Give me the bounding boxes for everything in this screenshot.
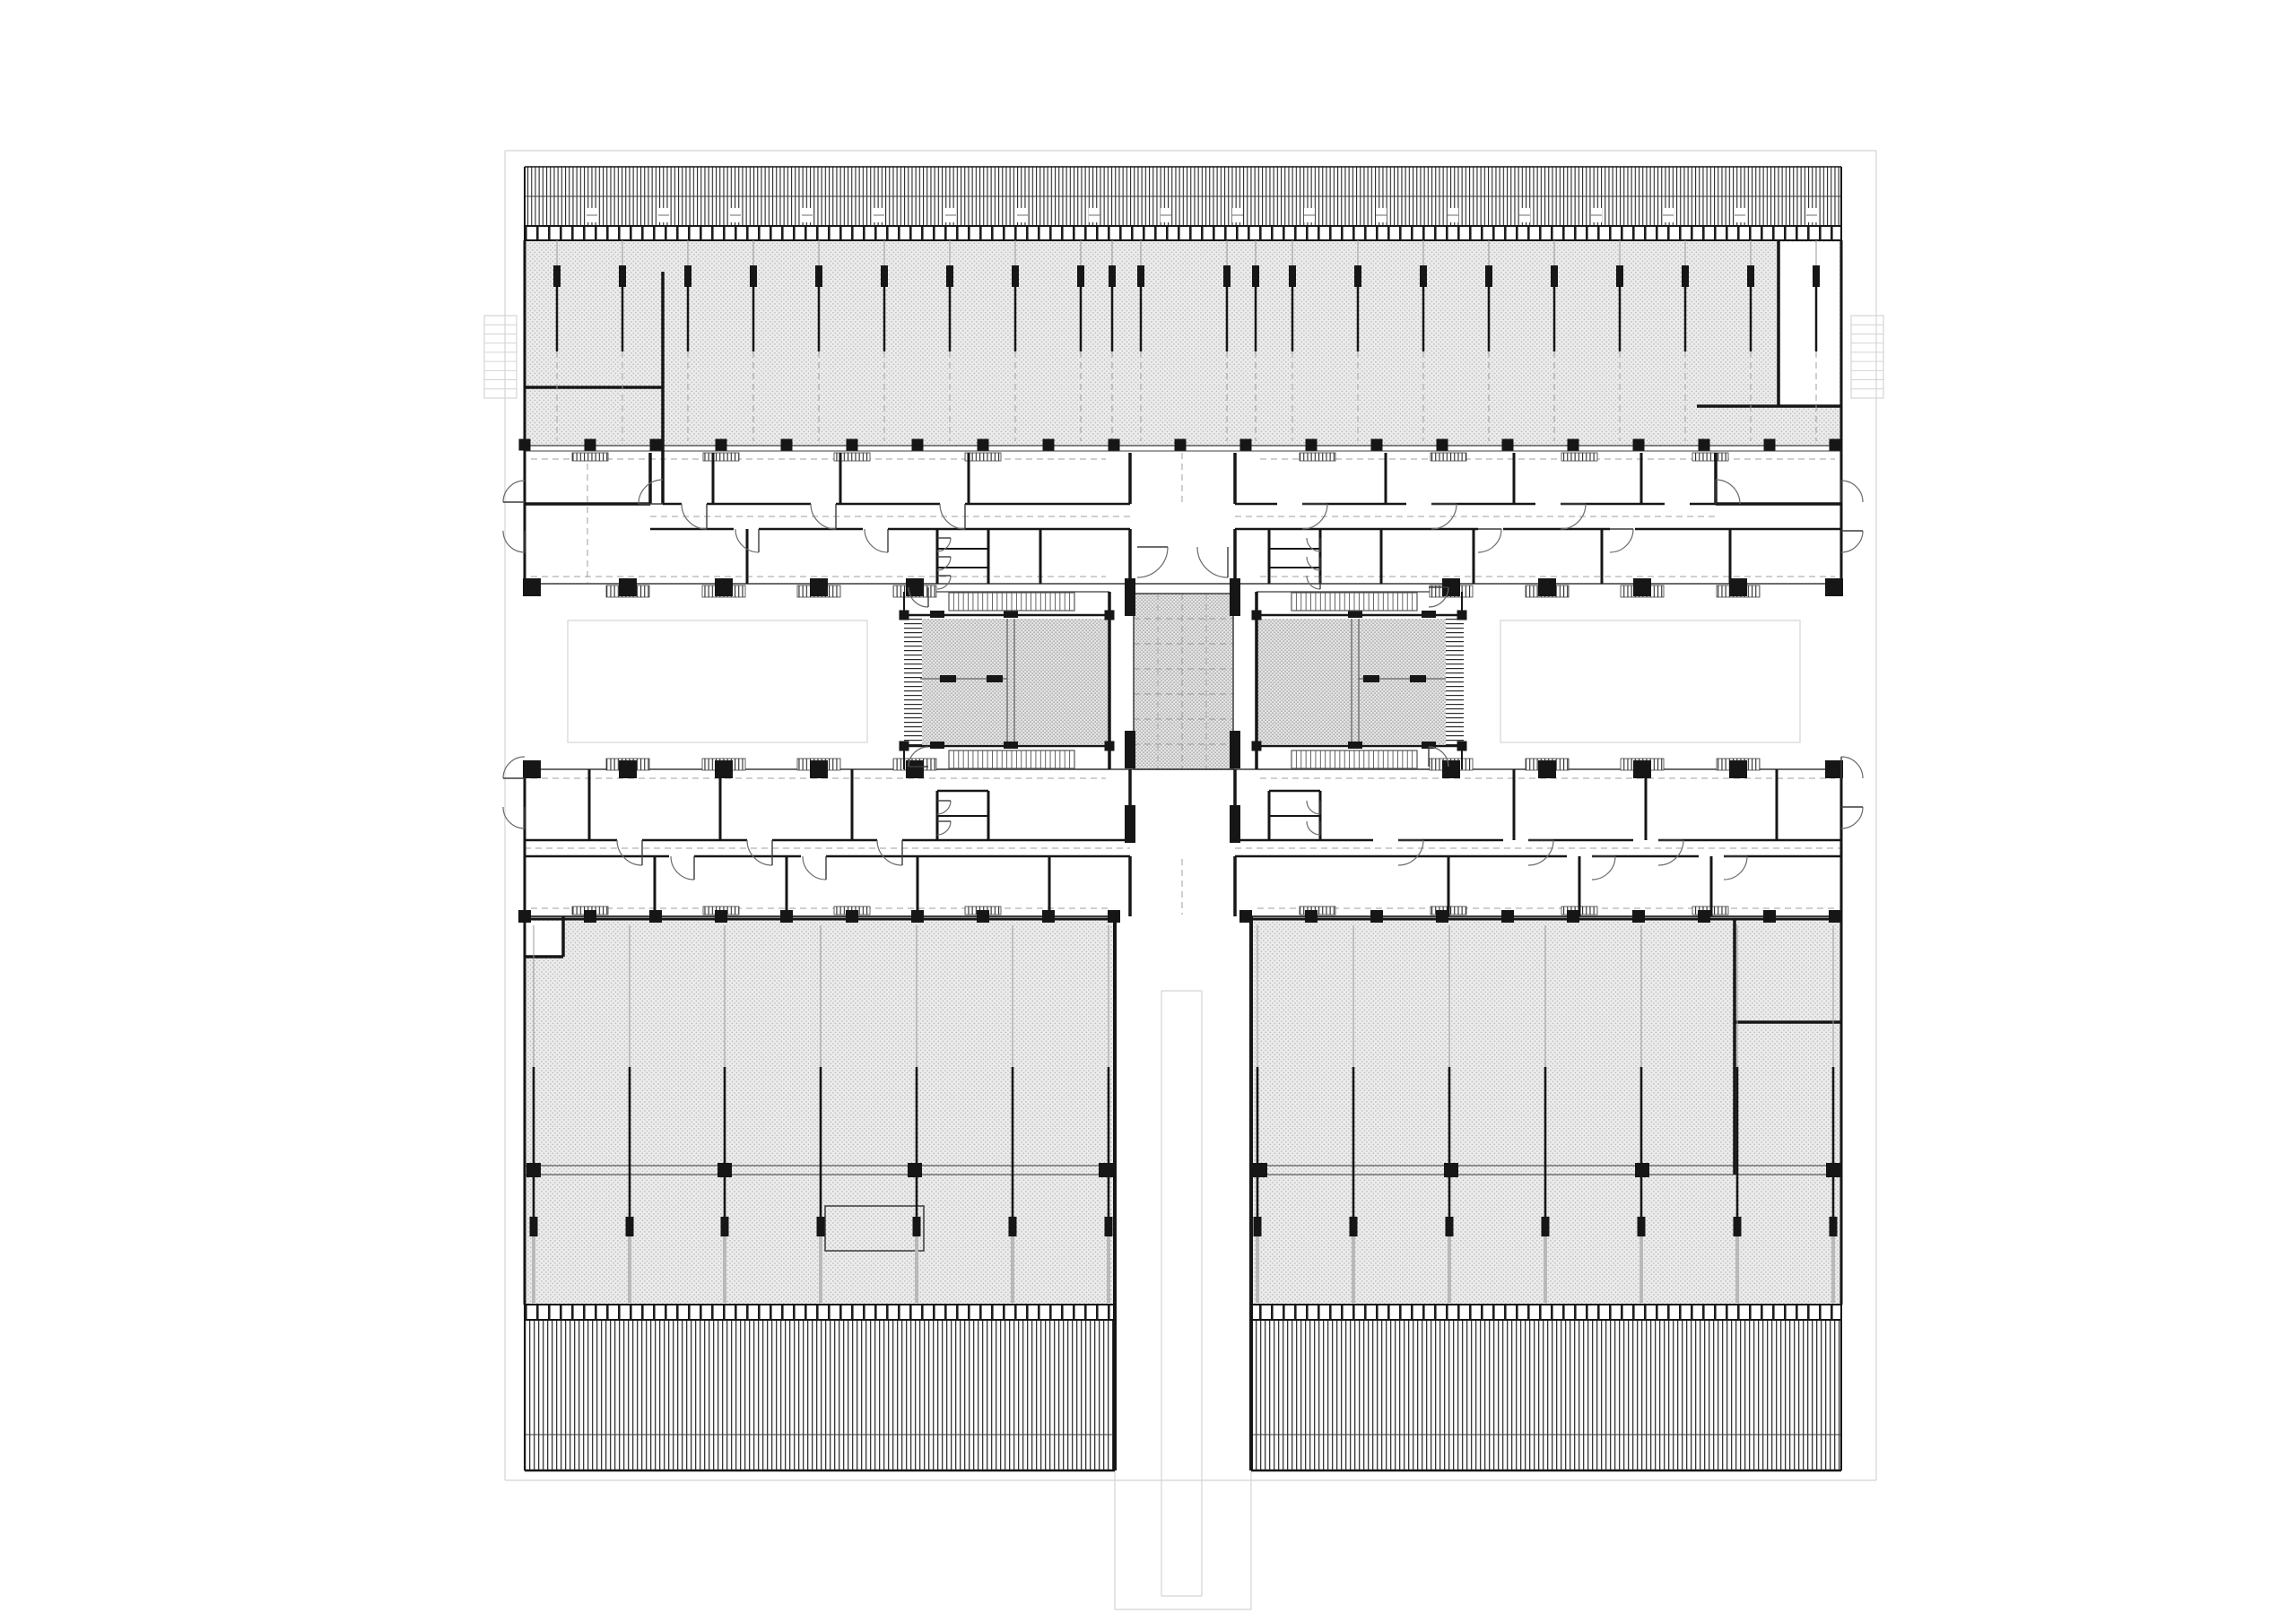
floor-plan-drawing — [0, 0, 2296, 1622]
hatch-fill-layer — [525, 167, 1841, 1470]
floor-plan-canvas — [0, 0, 2296, 1622]
